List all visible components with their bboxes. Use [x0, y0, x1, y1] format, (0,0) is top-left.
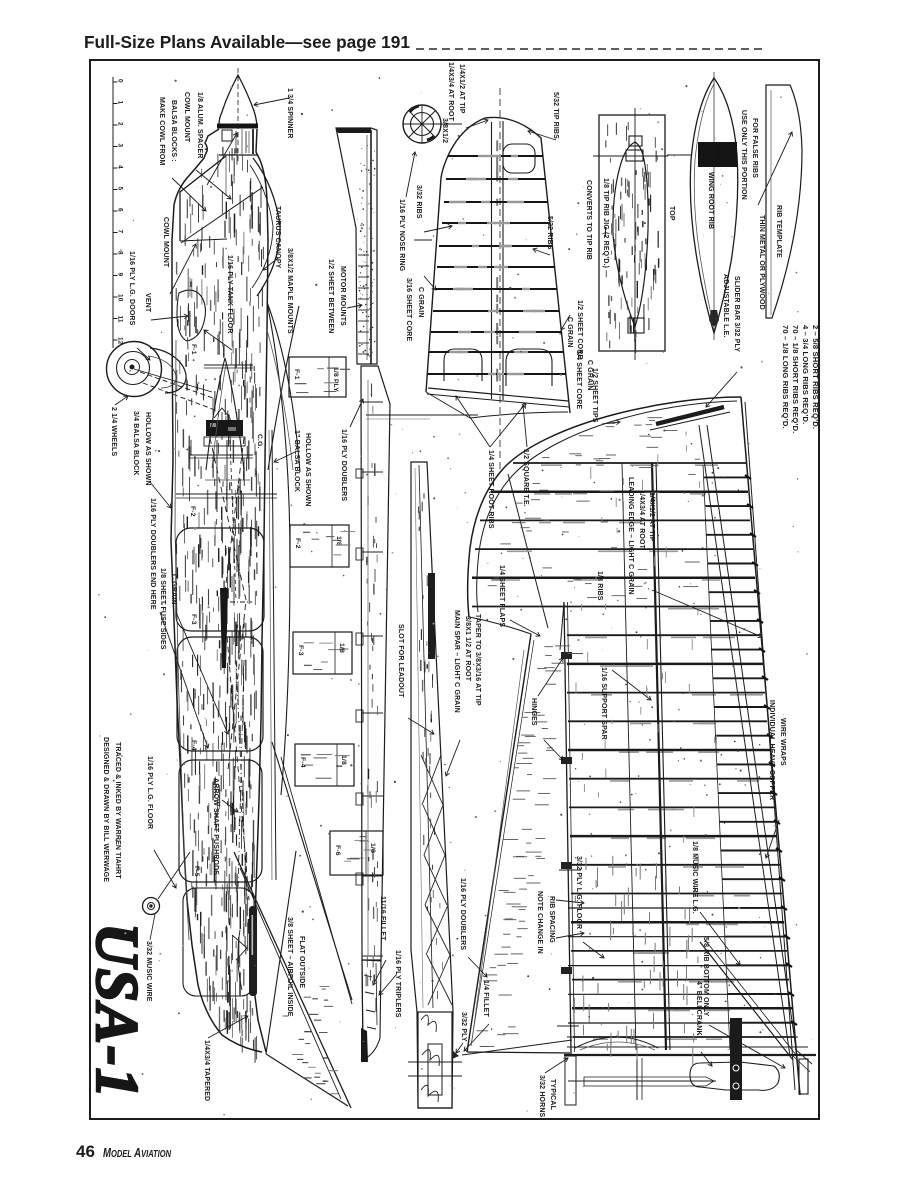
svg-text:RIB TEMPLATE: RIB TEMPLATE	[775, 205, 782, 258]
svg-text:INDIVIDUAL HEAVY COPPER: INDIVIDUAL HEAVY COPPER	[768, 700, 775, 800]
svg-text:HINGES: HINGES	[530, 698, 537, 726]
svg-text:F-1: F-1	[293, 369, 300, 380]
svg-text:1/4 FILLET: 1/4 FILLET	[482, 980, 489, 1017]
svg-text:8: 8	[117, 251, 124, 255]
svg-text:FOR FALSE RIBS: FOR FALSE RIBS	[751, 118, 758, 178]
svg-text:COWL MOUNT: COWL MOUNT	[162, 217, 169, 268]
svg-text:F-4: F-4	[299, 757, 306, 768]
svg-text:3/8X1/2 MAPLE MOUNTS: 3/8X1/2 MAPLE MOUNTS	[286, 248, 293, 334]
svg-text:Full-Size Plans Available—see: Full-Size Plans Available—see page 191	[84, 32, 410, 52]
svg-text:1/4X3/4 AT ROOT: 1/4X3/4 AT ROOT	[447, 62, 454, 122]
svg-text:ADJUSTABLE L.E.: ADJUSTABLE L.E.	[722, 274, 729, 338]
svg-text:FLAT OUTSIDE: FLAT OUTSIDE	[298, 936, 305, 988]
svg-text:F-3: F-3	[190, 614, 197, 625]
svg-text:46: 46	[76, 1142, 95, 1161]
svg-text:1/16 PLY DOUBLERS END HERE: 1/16 PLY DOUBLERS END HERE	[149, 498, 156, 610]
svg-text:HOLLOW AS SHOWN: HOLLOW AS SHOWN	[304, 433, 311, 507]
svg-text:SLIDER BAR 3/32 PLY: SLIDER BAR 3/32 PLY	[733, 276, 740, 352]
svg-text:11: 11	[117, 316, 124, 323]
svg-text:C GRAIN: C GRAIN	[566, 317, 573, 348]
svg-text:1/8 PLY: 1/8 PLY	[332, 367, 339, 392]
svg-text:TRACED & INKED BY WARREN TIAHR: TRACED & INKED BY WARREN TIAHRT	[114, 742, 121, 879]
svg-text:2 1/4 WHEELS: 2 1/4 WHEELS	[110, 407, 117, 456]
svg-text:6: 6	[117, 208, 124, 212]
svg-text:NOTE CHANGE IN: NOTE CHANGE IN	[536, 891, 543, 954]
svg-text:3/32 PLY L.G. FLOOR: 3/32 PLY L.G. FLOOR	[575, 856, 582, 929]
svg-text:1/8 MUSIC WIRE L.G.: 1/8 MUSIC WIRE L.G.	[691, 841, 698, 914]
svg-text:1/16 PLY NOSE RING: 1/16 PLY NOSE RING	[398, 199, 405, 272]
svg-text:F-1: F-1	[190, 344, 197, 355]
svg-text:5/32 TIP RIBS: 5/32 TIP RIBS	[552, 92, 559, 139]
svg-text:4 – 3/4 LONG RIBS REQ’D.: 4 – 3/4 LONG RIBS REQ’D.	[801, 325, 810, 424]
svg-text:11/16 FILLET: 11/16 FILLET	[379, 896, 386, 941]
svg-text:F-5: F-5	[193, 866, 200, 877]
svg-text:1/8: 1/8	[340, 755, 347, 765]
svg-text:WING ROOT RIB: WING ROOT RIB	[707, 172, 714, 229]
svg-text:1/16 PLY L.G. FLOOR: 1/16 PLY L.G. FLOOR	[146, 756, 153, 829]
svg-text:3/8 SHEET – AIRFOIL INSIDE: 3/8 SHEET – AIRFOIL INSIDE	[286, 917, 293, 1017]
svg-text:1/16 SUPPORT SPAR: 1/16 SUPPORT SPAR	[600, 667, 607, 740]
svg-text:4” BELLCRANK: 4” BELLCRANK	[695, 981, 702, 1036]
svg-text:3/32 PLY: 3/32 PLY	[460, 1012, 467, 1042]
svg-text:3/8X1/2: 3/8X1/2	[441, 118, 448, 143]
svg-text:MAKE COWL FROM: MAKE COWL FROM	[158, 97, 165, 165]
svg-text:1/2 SHEET BETWEEN: 1/2 SHEET BETWEEN	[327, 259, 334, 334]
svg-text:1/8: 1/8	[338, 643, 345, 653]
svg-text:3/32 RIBS: 3/32 RIBS	[415, 185, 422, 219]
svg-text:F-2: F-2	[294, 538, 301, 549]
svg-text:LEADING EDGE – LIGHT C GRAIN: LEADING EDGE – LIGHT C GRAIN	[627, 477, 634, 595]
svg-text:C GRAIN: C GRAIN	[586, 360, 593, 391]
svg-text:1/2 SQUARE T.E.: 1/2 SQUARE T.E.	[522, 449, 529, 507]
svg-text:F-6: F-6	[334, 845, 341, 856]
svg-text:1” BALSA BLOCK: 1” BALSA BLOCK	[293, 430, 300, 492]
svg-text:C.G.: C.G.	[256, 434, 263, 449]
svg-text:RIB SPACING: RIB SPACING	[548, 896, 555, 943]
svg-text:C GRAIN: C GRAIN	[417, 287, 424, 318]
svg-text:MAIN SPAR – LIGHT C GRAIN: MAIN SPAR – LIGHT C GRAIN	[453, 610, 460, 713]
svg-text:5/32 RIBS: 5/32 RIBS	[546, 216, 553, 250]
svg-text:2: 2	[117, 122, 124, 126]
svg-text:F-3: F-3	[297, 645, 304, 656]
svg-text:1/16 PLY L.G. DOORS: 1/16 PLY L.G. DOORS	[128, 251, 135, 326]
svg-text:1/8 ALUM. SPACER: 1/8 ALUM. SPACER	[196, 92, 203, 159]
svg-text:1/4X3/4 TAPERED: 1/4X3/4 TAPERED	[203, 1040, 210, 1101]
svg-text:1/8 SHEET FUSE SIDES: 1/8 SHEET FUSE SIDES	[159, 568, 166, 650]
svg-text:1/16 PLY TRIPLERS: 1/16 PLY TRIPLERS	[394, 950, 401, 1018]
svg-text:TAPER TO 3/8X3/16 AT TIP: TAPER TO 3/8X3/16 AT TIP	[474, 614, 481, 706]
svg-text:3/16 SHEET CORE: 3/16 SHEET CORE	[405, 278, 412, 342]
svg-text:0: 0	[117, 79, 124, 83]
svg-text:WIRE WRAPS: WIRE WRAPS	[779, 718, 786, 766]
svg-text:USE ONLY THIS PORTION: USE ONLY THIS PORTION	[740, 110, 747, 200]
svg-text:COWL MOUNT: COWL MOUNT	[183, 92, 190, 143]
svg-text:9: 9	[117, 273, 124, 277]
svg-text:TOP: TOP	[668, 206, 675, 221]
svg-text:1: 1	[117, 101, 124, 105]
svg-text:1/4 SHEET CORE: 1/4 SHEET CORE	[575, 350, 582, 409]
svg-text:1/16 PLY TANK FLOOR: 1/16 PLY TANK FLOOR	[226, 255, 233, 334]
svg-text:7: 7	[117, 230, 124, 234]
svg-text:1/4 SHEET FLAPS: 1/4 SHEET FLAPS	[498, 565, 505, 627]
svg-text:3/8X1 1/2 AT ROOT: 3/8X1 1/2 AT ROOT	[464, 616, 471, 682]
svg-text:F-4: F-4	[190, 740, 197, 751]
svg-text:C GRAIN: C GRAIN	[170, 574, 177, 605]
svg-text:USA-1: USA-1	[84, 923, 150, 1100]
svg-text:3/4 BALSA BLOCK: 3/4 BALSA BLOCK	[132, 411, 139, 476]
svg-text:TAURUS CANOPY: TAURUS CANOPY	[274, 206, 281, 269]
svg-text:5: 5	[117, 187, 124, 191]
svg-text:1 3/4 SPINNER: 1 3/4 SPINNER	[286, 88, 293, 139]
svg-text:BALSA BLOCKS :: BALSA BLOCKS :	[170, 100, 177, 162]
svg-text:1/4X3/4 AT ROOT: 1/4X3/4 AT ROOT	[638, 490, 645, 550]
svg-text:1/4X1/2 AT TIP: 1/4X1/2 AT TIP	[458, 64, 465, 114]
svg-text:CONVERTS TO TIP RIB: CONVERTS TO TIP RIB	[585, 180, 592, 260]
svg-text:TYPICAL: TYPICAL	[549, 1079, 556, 1111]
svg-text:1/4X1/2 AT TIP: 1/4X1/2 AT TIP	[648, 492, 655, 542]
svg-text:5/8 RIB BOTTOM ONLY: 5/8 RIB BOTTOM ONLY	[702, 937, 709, 1017]
svg-text:1/8 TIP RIB JIG (2 REQ’D.) —: 1/8 TIP RIB JIG (2 REQ’D.) —	[602, 178, 609, 277]
svg-text:MOTOR MOUNTS: MOTOR MOUNTS	[339, 266, 346, 326]
svg-text:70 – 1/8 SHORT RIBS REQ’D.: 70 – 1/8 SHORT RIBS REQ’D.	[791, 325, 800, 434]
svg-text:3: 3	[117, 144, 124, 148]
svg-text:10: 10	[117, 294, 124, 302]
svg-text:1/8 RIBS: 1/8 RIBS	[596, 571, 603, 601]
svg-text:F-2: F-2	[189, 506, 196, 517]
svg-text:1/16 PLY DOUBLERS: 1/16 PLY DOUBLERS	[459, 878, 466, 950]
svg-text:SLOT FOR LEADOUT: SLOT FOR LEADOUT	[397, 624, 404, 698]
svg-text:3/32 HORNS: 3/32 HORNS	[538, 1075, 545, 1118]
svg-text:2 – 5/8 SHORT RIBS REQ’D.: 2 – 5/8 SHORT RIBS REQ’D.	[811, 325, 820, 429]
svg-text:70 – 1/8 LONG RIBS REQ’D.: 70 – 1/8 LONG RIBS REQ’D.	[781, 325, 790, 429]
svg-text:ARROW SHAFT PUSHRODS: ARROW SHAFT PUSHRODS	[212, 778, 219, 875]
svg-text:HOLLOW AS SHOWN: HOLLOW AS SHOWN	[144, 412, 151, 486]
svg-text:THIN METAL OR PLYWOOD: THIN METAL OR PLYWOOD	[758, 215, 765, 310]
svg-text:4: 4	[117, 165, 124, 169]
svg-text:VENT: VENT	[144, 293, 151, 313]
svg-text:DESIGNED & DRAWN BY BILL WERWA: DESIGNED & DRAWN BY BILL WERWAGE	[102, 737, 109, 882]
